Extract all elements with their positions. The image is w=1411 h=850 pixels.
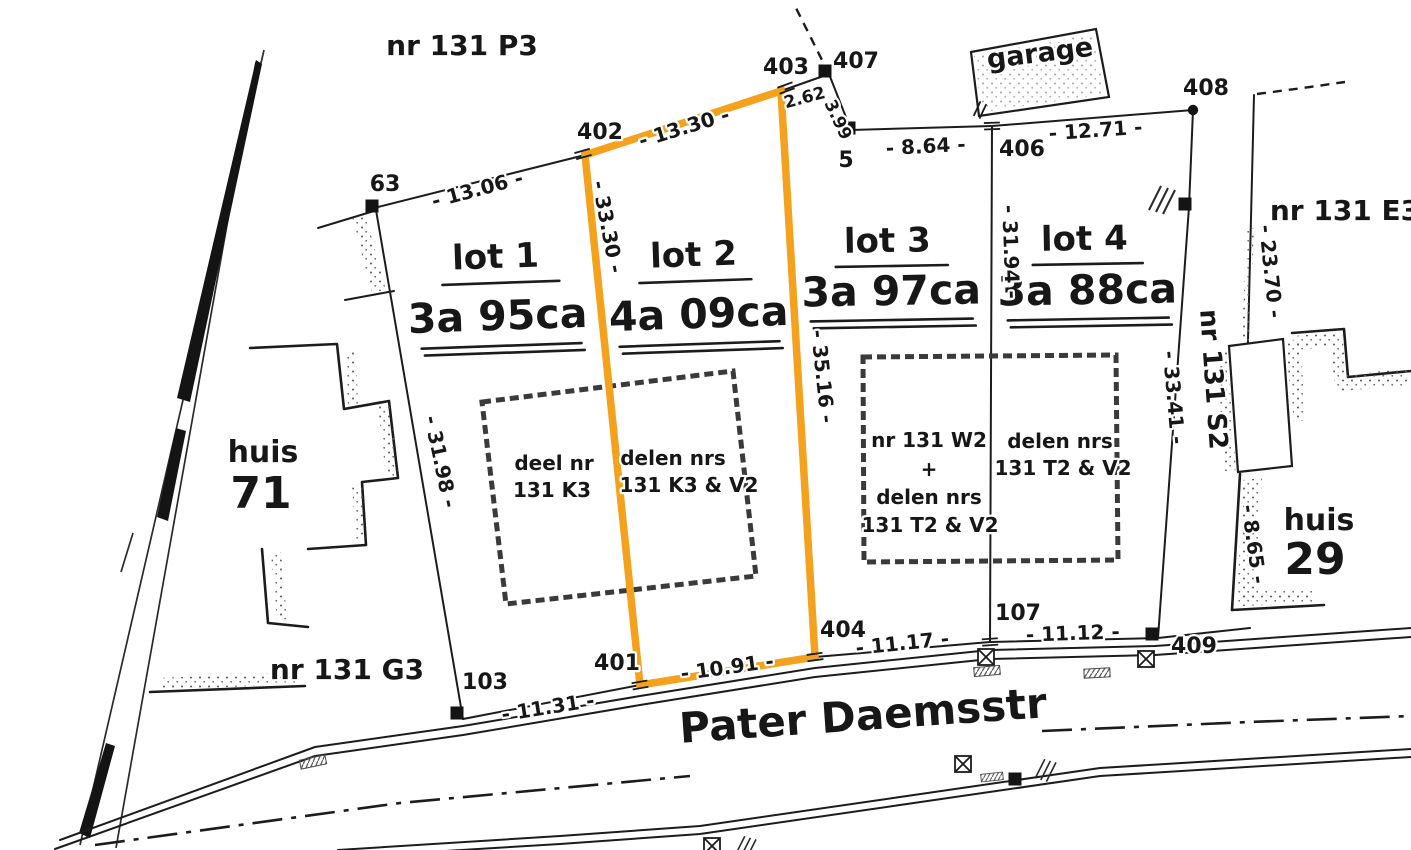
point-408-dot xyxy=(1188,105,1198,115)
lot1-area: 3a 95ca xyxy=(407,289,588,343)
lot3-name: lot 3 xyxy=(844,220,931,262)
hatch-right-edge xyxy=(1149,186,1175,214)
xmark-107 xyxy=(978,649,994,665)
hatch-street-2 xyxy=(735,836,756,850)
lot3-area: 3a 97ca xyxy=(801,265,981,316)
lot2-area: 4a 09ca xyxy=(608,287,789,341)
env2-right-line2: 131 T2 & V2 xyxy=(994,456,1131,480)
huis29-number: 29 xyxy=(1284,534,1345,585)
env1-left-line1: deel nr xyxy=(514,451,594,475)
measure-33-41: - 33.41 - xyxy=(1158,350,1190,446)
parcel-label-131s2: nr 131 S2 xyxy=(1193,308,1233,450)
measure-13-30: - 13.30 - xyxy=(636,102,733,152)
point-label-5: 5 xyxy=(838,148,853,173)
huis71-word: huis xyxy=(228,435,299,470)
measure-31-98: - 31.98 - xyxy=(419,413,462,510)
huis71-number: 71 xyxy=(230,468,291,519)
env2-left-line1: nr 131 W2 xyxy=(871,428,987,452)
lot2-highlight-outline xyxy=(585,91,815,685)
parcel-label-131g3: nr 131 G3 xyxy=(270,653,424,686)
cadastral-plan-page: lot 1 3a 95ca lot 2 4a 09ca lot 3 3a 97c… xyxy=(0,0,1411,850)
point-label-401: 401 xyxy=(594,651,640,676)
lot4-name: lot 4 xyxy=(1041,218,1128,260)
stone-right-edge xyxy=(1179,198,1192,211)
parcel-label-131e3: nr 131 E3 xyxy=(1270,194,1411,227)
point-label-409: 409 xyxy=(1171,634,1217,659)
measure-31-94: - 31.94 - xyxy=(997,204,1024,299)
measure-10-91: - 10.91 - xyxy=(679,649,775,686)
stone-103 xyxy=(451,707,464,720)
measure-23-70: - 23.70 - xyxy=(1254,223,1288,319)
measure-35-16: - 35.16 - xyxy=(806,328,840,424)
culvert-3 xyxy=(299,755,326,769)
point-label-103: 103 xyxy=(462,670,508,695)
culvert-2 xyxy=(1084,668,1110,678)
measure-3-99: 3.99 xyxy=(820,97,856,143)
measure-8-64: - 8.64 - xyxy=(885,132,966,160)
xmark-409 xyxy=(1138,651,1154,667)
point-label-406: 406 xyxy=(999,137,1045,162)
env1-right-line1: delen nrs xyxy=(620,446,726,470)
env2-right-line1: delen nrs xyxy=(1007,429,1113,453)
measure-12-71: - 12.71 - xyxy=(1048,115,1143,145)
env1-right-line2: 131 K3 & V2 xyxy=(620,473,759,497)
culvert-1 xyxy=(974,665,1001,676)
lot2-name: lot 2 xyxy=(649,234,737,277)
measure-13-06: - 13.06 - xyxy=(429,166,526,213)
point-label-63: 63 xyxy=(370,172,401,197)
stone-63 xyxy=(366,200,379,213)
lot3-label-block: lot 3 3a 97ca xyxy=(800,219,981,328)
lot1-name: lot 1 xyxy=(451,236,539,279)
hatch-street-1 xyxy=(1035,759,1056,781)
point-label-407: 407 xyxy=(833,49,879,74)
env1-left-line2: 131 K3 xyxy=(513,478,591,502)
point-label-403: 403 xyxy=(763,55,809,80)
xmark-street-2 xyxy=(704,838,720,850)
measure-11-12: - 11.12 - xyxy=(1025,619,1120,646)
stone-street xyxy=(1009,773,1022,786)
boundary-stubs xyxy=(318,211,394,300)
culvert-4 xyxy=(981,772,1004,782)
env2-left-line4: 131 T2 & V2 xyxy=(861,513,998,537)
site-plan-drawing: lot 1 3a 95ca lot 2 4a 09ca lot 3 3a 97c… xyxy=(0,0,1411,850)
stone-409 xyxy=(1146,628,1159,641)
stone-407 xyxy=(819,65,832,78)
lot2-label-block: lot 2 4a 09ca xyxy=(606,232,789,354)
lot1-label-block: lot 1 3a 95ca xyxy=(405,234,588,356)
street-south-edge xyxy=(330,749,1411,850)
xmark-street-1 xyxy=(955,756,971,772)
env2-left-line2: + xyxy=(921,457,938,481)
envelope2-texts: nr 131 W2 + delen nrs 131 T2 & V2 delen … xyxy=(861,428,1131,537)
envelope1-texts: deel nr 131 K3 delen nrs 131 K3 & V2 xyxy=(513,446,759,502)
parcel-label-131p3: nr 131 P3 xyxy=(386,29,538,62)
point-label-402: 402 xyxy=(577,120,623,145)
point-label-408: 408 xyxy=(1183,76,1229,101)
env2-left-line3: delen nrs xyxy=(876,485,982,509)
huis29-word: huis xyxy=(1284,503,1355,538)
